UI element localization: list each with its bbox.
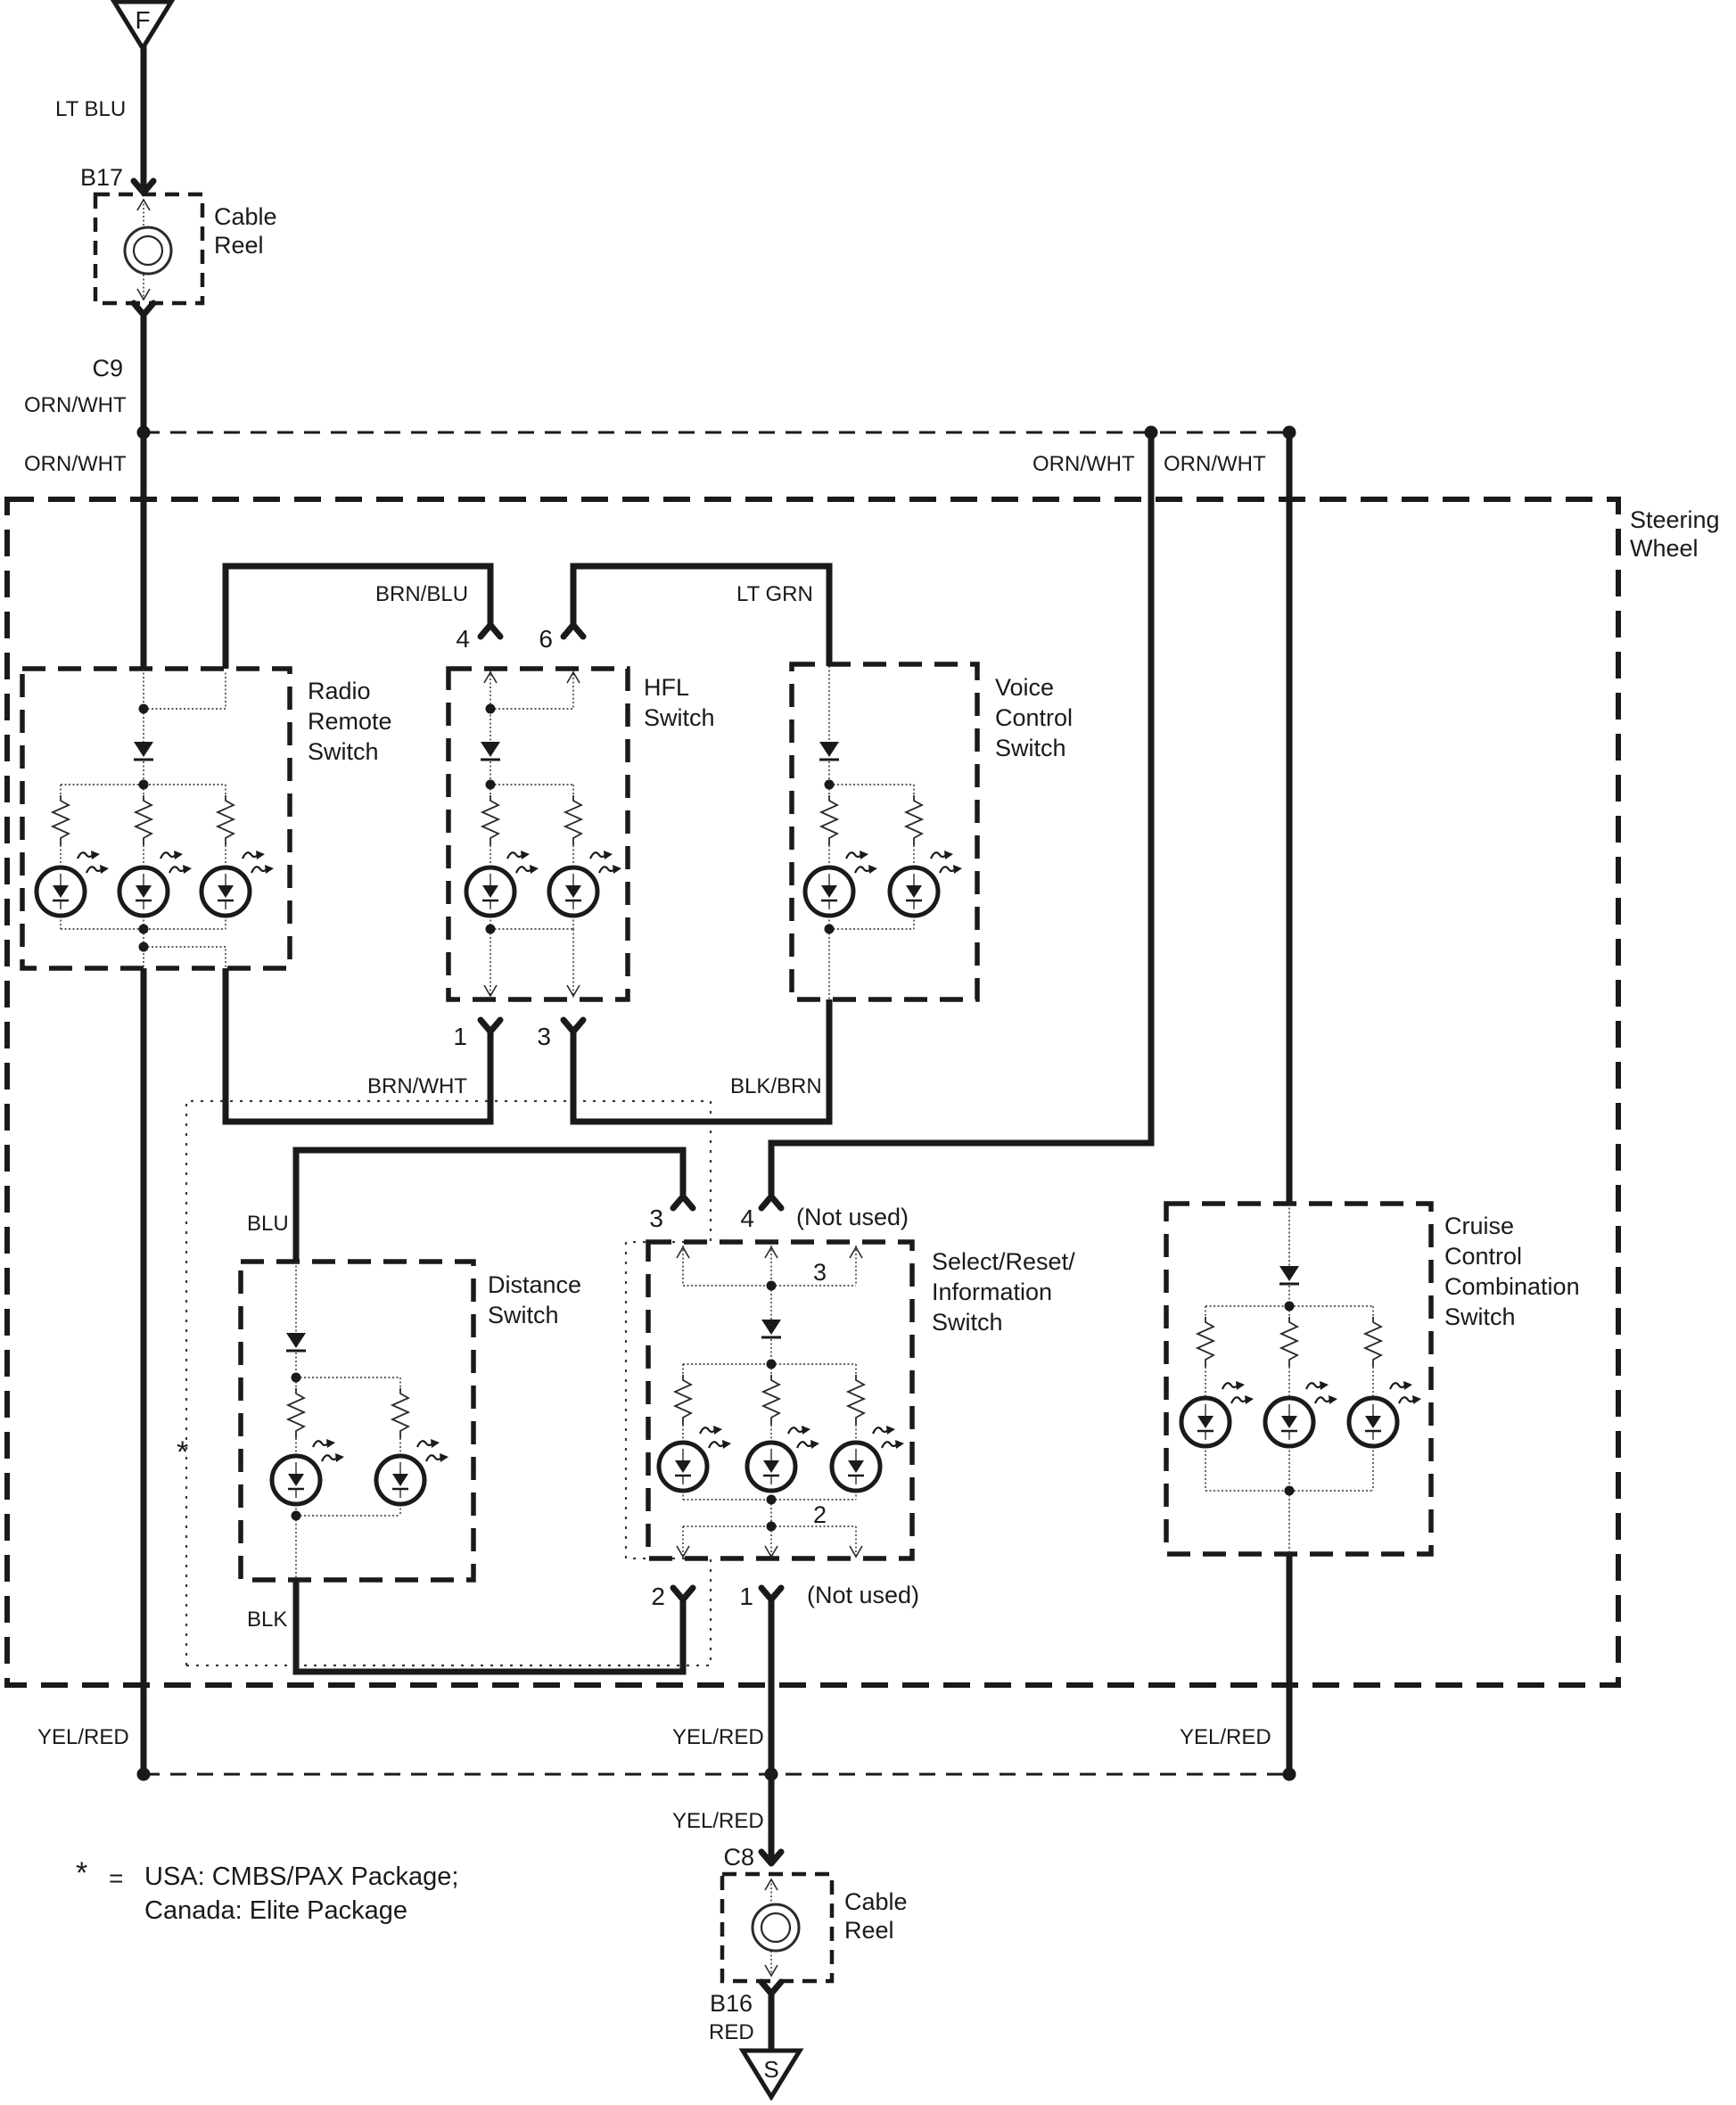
label-orn-wht-1: ORN/WHT — [24, 393, 127, 417]
cable-reel-top-label-1: Cable — [214, 203, 277, 230]
cable-reel-bottom-label-1: Cable — [844, 1888, 908, 1915]
steering-wheel-box: Steering Wheel — [7, 499, 1720, 1685]
label-blk-brn: BLK/BRN — [730, 1074, 822, 1098]
voice-control-label-1: Voice — [995, 674, 1054, 701]
label-yel-red-4: YEL/RED — [672, 1809, 764, 1833]
cruise-symbols — [1181, 1266, 1421, 1496]
label-sel-t3: 3 — [649, 1205, 663, 1232]
connector-f-label: F — [135, 6, 150, 34]
led-indicator — [272, 1439, 344, 1504]
footnote-equals: = — [109, 1864, 123, 1892]
cable-reel-bottom-label-2: Reel — [844, 1917, 894, 1944]
label-blu: BLU — [247, 1212, 289, 1236]
label-lt-grn: LT GRN — [736, 582, 813, 606]
cable-reel-top-box: Cable Reel — [95, 194, 277, 303]
label-yel-red-2: YEL/RED — [672, 1725, 764, 1749]
wires — [144, 45, 1289, 2052]
radio-remote-label-1: Radio — [308, 678, 371, 704]
footnote-line-2: Canada: Elite Package — [144, 1896, 407, 1925]
cable-reel-top-label-2: Reel — [214, 232, 264, 259]
steering-wheel-label-1: Steering — [1630, 506, 1720, 533]
distance-internals — [296, 1262, 400, 1580]
label-brn-blu: BRN/BLU — [375, 582, 468, 606]
label-sel-t4: 4 — [740, 1205, 754, 1232]
label-c8: C8 — [723, 1844, 754, 1871]
led-indicator — [890, 851, 962, 916]
option-asterisk: * — [177, 1435, 188, 1469]
label-hfl-t4: 4 — [456, 625, 470, 653]
label-c9: C9 — [92, 355, 123, 382]
labels: LT BLU B17 C9 ORN/WHT ORN/WHT ORN/WHT OR… — [24, 97, 1271, 2044]
led-indicator — [1265, 1381, 1337, 1446]
radio-remote-label-2: Remote — [308, 708, 392, 735]
led-indicator — [1349, 1381, 1421, 1446]
cruise-label-4: Switch — [1444, 1303, 1516, 1330]
select-reset-internals — [683, 1246, 856, 1557]
distance-label-1: Distance — [488, 1271, 581, 1298]
led-indicator — [202, 851, 274, 916]
led-indicator — [376, 1439, 448, 1504]
cruise-label-2: Control — [1444, 1243, 1522, 1270]
connector-s-label: S — [763, 2056, 778, 2083]
label-brn-wht: BRN/WHT — [367, 1074, 467, 1098]
select-reset-label-3: Switch — [932, 1309, 1003, 1336]
label-orn-wht-3: ORN/WHT — [1033, 452, 1135, 476]
voice-control-label-3: Switch — [995, 735, 1066, 761]
led-indicator — [119, 851, 192, 916]
wiring-diagram: * Steering Wheel Cable Reel Radio Remote… — [0, 0, 1736, 2101]
led-indicator — [466, 851, 539, 916]
hfl-internals — [490, 670, 573, 998]
label-b17: B17 — [80, 164, 123, 191]
label-orn-wht-4: ORN/WHT — [1164, 452, 1266, 476]
label-yel-red-1: YEL/RED — [37, 1725, 129, 1749]
voice-internals — [829, 666, 914, 999]
wire-lt-grn — [573, 566, 829, 666]
voice-control-label-2: Control — [995, 704, 1073, 731]
footnote: * = USA: CMBS/PAX Package; Canada: Elite… — [76, 1856, 458, 1925]
radio-remote-symbols — [37, 704, 274, 952]
select-reset-label-2: Information — [932, 1279, 1052, 1305]
label-sel-t1: 1 — [739, 1583, 753, 1610]
footnote-star: * — [76, 1856, 87, 1890]
distance-label-2: Switch — [488, 1302, 559, 1328]
wire-blk — [296, 1580, 683, 1672]
label-orn-wht-2: ORN/WHT — [24, 452, 127, 476]
led-indicator — [659, 1426, 731, 1491]
led-indicator — [747, 1426, 819, 1491]
label-b16: B16 — [710, 1990, 753, 2017]
radio-remote-switch-box: Radio Remote Switch — [22, 669, 392, 968]
connector-f: F — [114, 2, 171, 48]
label-hfl-t3: 3 — [537, 1023, 551, 1050]
cruise-label-1: Cruise — [1444, 1213, 1514, 1239]
cruise-label-3: Combination — [1444, 1273, 1580, 1300]
radio-remote-label-3: Switch — [308, 738, 379, 765]
connector-s: S — [743, 2051, 800, 2097]
led-indicator — [805, 851, 877, 916]
wire-blk-brn — [573, 999, 829, 1122]
label-yel-red-3: YEL/RED — [1180, 1725, 1271, 1749]
led-indicator — [549, 851, 621, 916]
cable-reel-bottom-box: Cable Reel — [722, 1874, 908, 1981]
select-reset-label-1: Select/Reset/ — [932, 1248, 1075, 1275]
label-sel-t2: 2 — [651, 1583, 665, 1610]
hfl-symbols — [466, 672, 621, 996]
led-indicator — [37, 851, 109, 916]
label-red: RED — [709, 2020, 754, 2044]
label-hfl-t1: 1 — [453, 1023, 467, 1050]
label-sel-inner-2: 2 — [813, 1501, 827, 1528]
label-blk: BLK — [247, 1608, 287, 1632]
cruise-internals — [1205, 1204, 1373, 1554]
steering-wheel-label-2: Wheel — [1630, 535, 1699, 562]
led-indicator — [832, 1426, 904, 1491]
hfl-label-2: Switch — [644, 704, 715, 731]
led-indicator — [1181, 1381, 1254, 1446]
footnote-line-1: USA: CMBS/PAX Package; — [144, 1862, 458, 1891]
label-sel-inner-3: 3 — [813, 1259, 827, 1286]
hfl-label-1: HFL — [644, 674, 689, 701]
label-not-used-top: (Not used) — [796, 1204, 909, 1230]
distance-symbols — [272, 1333, 448, 1521]
label-hfl-t6: 6 — [539, 625, 553, 653]
label-not-used-bottom: (Not used) — [807, 1582, 919, 1608]
label-lt-blu: LT BLU — [55, 97, 126, 121]
select-reset-symbols — [659, 1247, 904, 1557]
